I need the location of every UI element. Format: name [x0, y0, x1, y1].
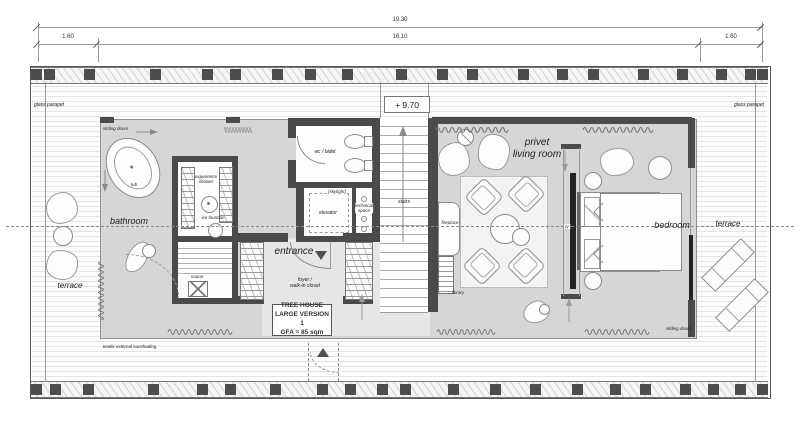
nightstand: [584, 172, 602, 190]
curtain-wavy-icon: [585, 326, 649, 334]
terrace-left-label: terrace: [58, 281, 83, 290]
parapet-line-right: [755, 82, 756, 382]
stairs-up-arrow-icon: [398, 126, 408, 242]
technical-label: technical space: [355, 203, 373, 213]
parapet-line-left: [45, 82, 46, 382]
approach-arrow-icon: [317, 348, 329, 357]
wall-segment: [288, 160, 296, 184]
tv-label: tv: [564, 224, 570, 229]
glass-parapet-label-left: glass parapet: [34, 103, 64, 109]
pet-cat-head: [539, 304, 550, 315]
sliding-doors-label-top: sliding doors: [103, 126, 128, 131]
column-posts-bottom: [31, 384, 42, 395]
wardrobe-closet: [345, 242, 373, 300]
info-box-version: LARGE VERSION 1: [273, 311, 331, 329]
decor-stone: [648, 156, 672, 180]
shower-label: experience shower: [195, 174, 217, 184]
living-room-label: privet living room: [513, 137, 561, 160]
foyer-label: foyer / walk-in closet: [290, 278, 320, 290]
fireplace-label: fireplace: [441, 220, 458, 225]
info-box-area: GFA = 85 sqm: [281, 329, 324, 338]
wall-segment: [372, 118, 380, 242]
sauna-stove: [188, 281, 208, 297]
bidet: [344, 158, 366, 173]
ice-fountain-label: ice fountain: [201, 215, 224, 220]
sliding-doors-label-bottom: sliding doors: [666, 326, 691, 331]
bridge-edge: [380, 82, 381, 118]
wall-segment: [236, 233, 288, 242]
dim-right: 1.60: [725, 34, 737, 40]
bedroom-label: bedroom: [654, 220, 690, 230]
duvet: [600, 193, 682, 271]
wall-segment: [232, 242, 238, 304]
duvet-fold-icon: [594, 203, 604, 221]
plant: [478, 134, 510, 170]
sliding-direction-arrow-icon: [136, 128, 158, 136]
sauna-benches: [178, 244, 232, 276]
floor-plan: 19.30 1.60 16.10 1.60: [0, 0, 800, 434]
skylight-label: (skylight): [327, 189, 347, 194]
shower-drain: [207, 202, 210, 205]
terrace-stone: [53, 226, 73, 246]
terrace-stone: [46, 250, 78, 280]
entrance-label: entrance: [275, 246, 314, 258]
sliding-direction-arrow-icon: [101, 170, 109, 192]
toilet-tank: [364, 136, 373, 147]
side-table: [512, 228, 530, 246]
wall-segment: [288, 126, 296, 138]
foyer-up-arrow-icon: [358, 294, 366, 320]
structural-beam-bottom: [31, 381, 768, 398]
library-label: library: [452, 290, 464, 295]
wall-segment: [100, 117, 114, 123]
technical-equipment: [361, 196, 367, 202]
wall-segment: [172, 298, 238, 304]
tv-wall-cap: [561, 144, 581, 149]
level-marker: + 9.70: [384, 96, 430, 113]
stairs-label: stairs: [398, 200, 410, 206]
column-posts-top: [31, 69, 42, 80]
info-box: TREE HOUSE LARGE VERSION 1 GFA = 85 sqm: [272, 304, 332, 336]
wall-segment: [432, 117, 692, 124]
tv-panel: [570, 173, 576, 289]
duvet-fold-icon: [594, 245, 604, 263]
wc-label: wc / bidet: [314, 150, 335, 156]
curtain-wavy-icon: [224, 124, 252, 132]
entry-path-dashed: [308, 343, 310, 381]
curtain-wavy-icon: [583, 124, 653, 132]
technical-equipment: [361, 216, 367, 222]
curtain-wavy-icon: [437, 326, 495, 334]
sliding-panel-east: [689, 235, 693, 300]
dim-line: [38, 44, 762, 45]
curtain-wavy-icon: [168, 326, 232, 334]
entrance-door-leaf: [330, 242, 331, 268]
wall-segment: [688, 300, 695, 337]
curtain-wavy-icon: [436, 124, 508, 132]
bidet-tank: [364, 160, 373, 171]
curtain-wavy-icon: [95, 262, 103, 320]
tv-slide-arrow-icon: [561, 150, 569, 172]
glass-parapet-label-right: glass parapet: [734, 103, 764, 109]
fireplace-unit: [438, 202, 460, 256]
dim-left: 1.60: [62, 34, 74, 40]
elevator-label: elevator: [319, 211, 337, 217]
wall-segment: [172, 236, 238, 242]
bathroom-label: bathroom: [110, 216, 148, 226]
level-value: + 9.70: [395, 100, 419, 110]
tv-slide-arrow-icon: [565, 298, 573, 322]
shower-bench: [181, 167, 195, 229]
dim-total: 19.30: [392, 17, 407, 23]
structural-beam-top: [31, 67, 768, 84]
nightstand: [584, 272, 602, 290]
sunshading-label: textile external sunshading: [103, 344, 156, 349]
tub-label: tub: [131, 182, 137, 187]
sauna-label: sauna: [190, 274, 204, 279]
terrace-right-label: terrace: [716, 219, 741, 228]
toilet: [344, 134, 366, 149]
wall-segment: [288, 118, 380, 126]
dim-line: [38, 27, 762, 28]
wall-segment: [428, 118, 438, 312]
wall-segment: [226, 117, 240, 123]
plant: [438, 142, 470, 176]
dim-middle: 16.10: [392, 34, 407, 40]
wall-segment: [172, 156, 238, 162]
library-shelf: [438, 256, 454, 294]
info-box-title: TREE HOUSE: [281, 302, 323, 311]
entrance-arrow-icon: [315, 251, 327, 260]
wardrobe-closet: [240, 242, 264, 300]
wall-segment: [688, 118, 695, 168]
wall-segment: [296, 186, 304, 242]
